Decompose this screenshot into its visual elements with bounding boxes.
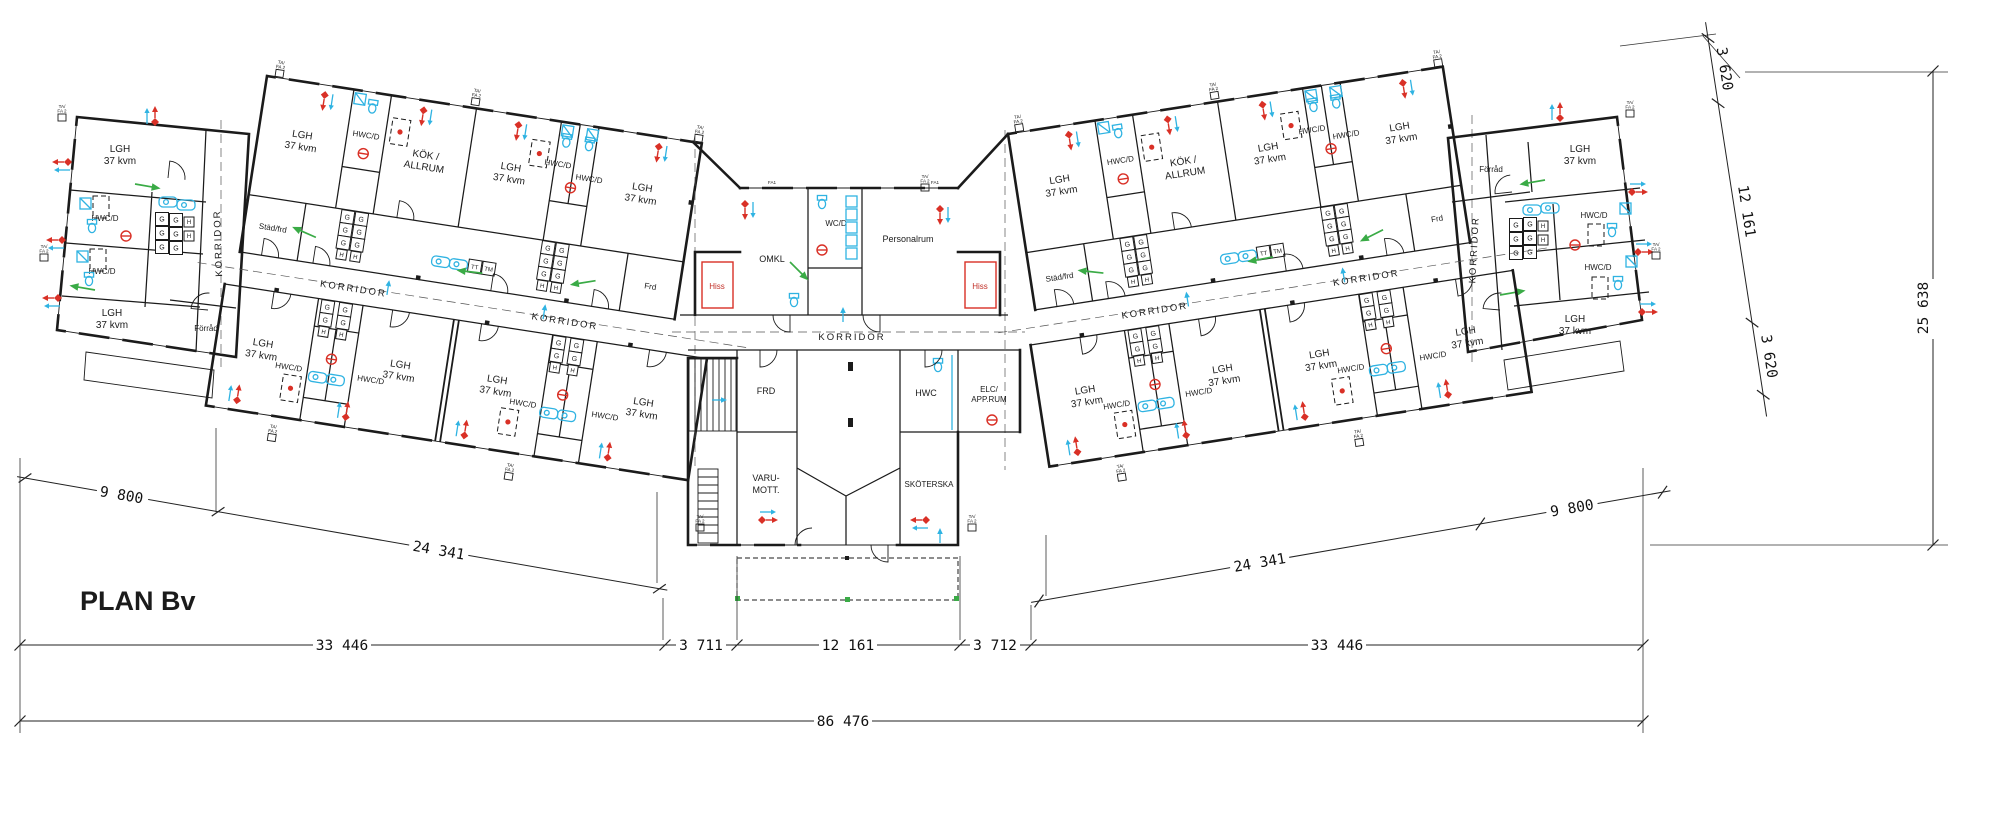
room-label-hwcd: HWC/D — [1584, 263, 1611, 272]
dim-3711: 3 711 — [679, 638, 723, 654]
dim-12161-bottom: 12 161 — [822, 638, 874, 654]
room-label-forrad: Förråd — [1479, 165, 1503, 174]
dim-86476: 86 476 — [817, 714, 869, 730]
room-label-hwc: HWC — [915, 388, 937, 398]
room-label-korridor: KORRIDOR — [818, 332, 885, 343]
room-label-lgh-area: 37 kvm — [1564, 156, 1596, 167]
wing-windows — [57, 117, 236, 357]
right-building — [965, 35, 1577, 498]
overall-width-dimension: 86 476 — [15, 713, 1649, 730]
room-label-lgh: LGH — [102, 308, 123, 319]
room-label-hiss: Hiss — [709, 282, 725, 291]
room-label-korridor: KORRIDOR — [1467, 216, 1482, 284]
left-diagonal-chain: 9 800 24 341 — [16, 469, 669, 599]
room-label-apprum: APP.RUM — [971, 395, 1007, 404]
room-label-hiss: Hiss — [972, 282, 988, 291]
left-building — [172, 50, 784, 513]
dim-33446-left: 33 446 — [316, 638, 368, 654]
dim-3712: 3 712 — [973, 638, 1017, 654]
room-label-varu: VARU- — [752, 473, 779, 483]
room-label-mott: MOTT. — [753, 485, 780, 495]
left-wing: LGH 37 kvm HWC/D HWC/D LGH 37 kvm Förråd… — [39, 104, 249, 398]
page-title: PLAN Bv — [80, 586, 196, 616]
right-diagonal-chain: 24 341 9 800 — [1030, 483, 1672, 611]
right-slanted-chain: 3 620 12 161 3 620 — [1700, 19, 1785, 417]
center-block: Hiss Hiss OMKL WC/D Personalrum KORRIDOR… — [672, 130, 1025, 602]
floor-plan-canvas: G H TA/ FA 2 — [0, 0, 2001, 833]
room-label-personalrum: Personalrum — [882, 234, 933, 244]
stairs-main — [689, 359, 736, 431]
room-label-lgh-area: 37 kvm — [96, 320, 128, 331]
room-label-forrad: Förråd — [194, 324, 218, 333]
dim-24341-left: 24 341 — [411, 539, 465, 564]
fa-marker: FA1 — [768, 180, 777, 185]
dim-33446-right: 33 446 — [1311, 638, 1363, 654]
wing-entrance-porch — [1504, 341, 1624, 390]
dim-9800-right: 9 800 — [1549, 497, 1595, 520]
dim-24341-right: 24 341 — [1233, 551, 1287, 576]
dim-25638: 25 638 — [1916, 282, 1932, 334]
room-label-lgh: LGH — [1570, 144, 1591, 155]
room-label-skoterska: SKÖTERSKA — [905, 480, 955, 489]
overall-depth-dimension: 25 638 — [1916, 66, 1941, 551]
floor-plan-page: G H TA/ FA 2 — [0, 0, 2001, 833]
room-label-korridor: KORRIDOR — [212, 209, 225, 277]
room-label-hwcd: HWC/D — [1580, 211, 1607, 220]
dimensions: 9 800 24 341 24 341 9 800 33 446 3 711 1… — [15, 19, 1949, 733]
room-label-lgh: LGH — [110, 144, 131, 155]
room-label-lgh: LGH — [1565, 314, 1586, 325]
room-label-lgh-area: 37 kvm — [104, 156, 136, 167]
room-label-wcd: WC/D — [825, 219, 847, 228]
dim-9800-left: 9 800 — [98, 484, 144, 507]
room-label-elc: ELC/ — [980, 385, 999, 394]
fa-marker: FA1 — [931, 180, 940, 185]
stairs-secondary — [698, 469, 718, 543]
bottom-dimension-chain: 33 446 3 711 12 161 3 712 33 446 — [15, 637, 1649, 654]
room-label-lgh-area: 37 kvm — [1559, 326, 1591, 337]
entrance-canopy — [737, 558, 958, 600]
room-label-frd: FRD — [757, 386, 776, 396]
room-label-omkl: OMKL — [759, 254, 785, 264]
dim-3620-top: 3 620 — [1713, 46, 1735, 92]
wing-interior-walls — [62, 130, 236, 352]
wing-entrance-porch — [84, 352, 214, 398]
dim-3620-bottom: 3 620 — [1757, 334, 1779, 380]
